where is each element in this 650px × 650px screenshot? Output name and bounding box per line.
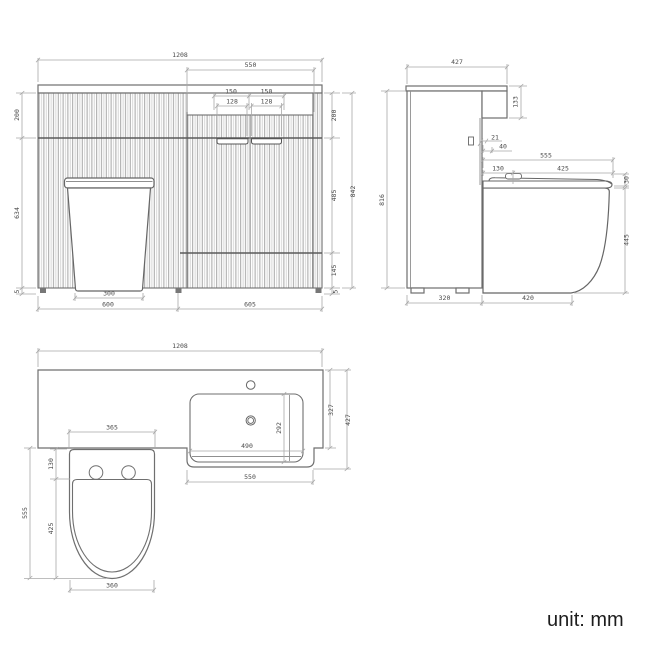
side-view: 427 133 21 40 555 130 425 30 445 816 320… (378, 58, 631, 306)
side-foot-front (411, 288, 424, 293)
side-toilet-pan (483, 188, 609, 293)
dim-plan-toilet-depth: 555 (21, 507, 29, 519)
front-foot-left (40, 288, 46, 293)
front-countertop (38, 85, 322, 93)
technical-drawing-page: 1208 550 150 150 128 128 200 634 5 200 4… (0, 0, 650, 650)
dim-side-cabinet-height-line (381, 89, 405, 290)
dim-front-right-unit-width: 605 (244, 301, 256, 309)
dim-side-top-depth: 427 (451, 58, 463, 66)
dim-front-handle-width-left: 128 (226, 98, 238, 106)
side-seat-hinge (506, 174, 522, 180)
side-toilet-seat (483, 181, 612, 188)
plan-hinge-left (89, 466, 103, 480)
front-view: 1208 550 150 150 128 128 200 634 5 200 4… (13, 51, 357, 312)
dim-side-cabinet-depth: 320 (439, 294, 451, 302)
dim-side-gap-small: 21 (491, 134, 499, 142)
dim-side-gap-large: 40 (499, 143, 507, 151)
side-cabinet (407, 91, 482, 288)
dim-plan-seat-length: 425 (47, 523, 55, 535)
dim-plan-basin-depth: 292 (275, 422, 283, 434)
front-fluted-right (313, 93, 322, 288)
dim-side-top-depth-line (405, 64, 509, 84)
front-foot-right (316, 288, 322, 293)
dim-front-handle-pitch-left: 150 (225, 88, 237, 96)
dim-plan-total-width: 1208 (172, 342, 188, 350)
vanity-unit-drawing: 1208 550 150 150 128 128 200 634 5 200 4… (0, 0, 650, 650)
side-fixing-bracket (469, 137, 474, 145)
dim-plan-toilet-back-width: 365 (106, 424, 118, 432)
dim-front-total-width: 1208 (172, 51, 188, 59)
dim-front-left-unit-width: 600 (102, 301, 114, 309)
dim-side-pan-projection: 420 (522, 294, 534, 302)
dim-front-plinth-left: 5 (13, 289, 21, 293)
dim-plan-basin-unit-width: 550 (244, 473, 256, 481)
dim-plan-counter-depth: 327 (327, 404, 335, 416)
dim-front-recess: 550 (245, 61, 257, 69)
front-handle-left (217, 139, 248, 144)
dim-side-seat-length: 425 (557, 165, 569, 173)
dim-front-unit-widths-line (36, 293, 324, 312)
dim-front-middle-height: 485 (330, 190, 338, 202)
dim-side-seat-total: 555 (540, 152, 552, 160)
dim-side-pan-height: 445 (623, 234, 631, 246)
dim-plan-toilet-front-width: 360 (106, 582, 118, 590)
plan-view: 1208 427 327 292 490 550 365 130 425 555… (21, 342, 352, 593)
side-countertop (406, 86, 507, 91)
front-foot-center (176, 288, 182, 293)
dim-front-handle-width-right: 128 (261, 98, 273, 106)
dim-side-seat-thickness: 30 (623, 176, 631, 184)
dim-front-handle-pitch-line (212, 93, 286, 110)
front-toilet-lid (65, 178, 155, 188)
dim-front-bottom-height: 145 (330, 265, 338, 277)
side-foot-back (456, 288, 469, 293)
dim-plan-toilet-back-depth: 130 (47, 458, 55, 470)
side-counter-overhang (482, 91, 507, 118)
front-handle-right (252, 139, 282, 144)
dim-front-toilet-base: 300 (103, 290, 115, 298)
dim-side-cabinet-height: 816 (378, 194, 386, 206)
dim-front-top-height-right: 200 (330, 110, 338, 122)
plan-tap-hole (246, 381, 255, 390)
dim-side-seat-back: 130 (492, 165, 504, 173)
dim-side-gap-large-line (481, 145, 512, 153)
dim-front-lower-height-left: 634 (13, 207, 21, 219)
dim-front-overall-height: 842 (349, 186, 357, 198)
dim-front-top-height-left: 200 (13, 109, 21, 121)
dim-plan-depth-max: 427 (344, 414, 352, 426)
dim-front-handle-pitch-right: 150 (261, 88, 273, 96)
dim-plan-total-width-line (36, 348, 324, 367)
plan-hinge-right (122, 466, 136, 480)
dim-side-fascia-height: 133 (512, 96, 520, 108)
unit-label: unit: mm (547, 609, 624, 631)
plan-basin (190, 394, 303, 462)
dim-front-plinth-right: 5 (332, 289, 340, 293)
dim-plan-basin-width: 490 (241, 442, 253, 450)
front-toilet-pan (68, 188, 151, 291)
